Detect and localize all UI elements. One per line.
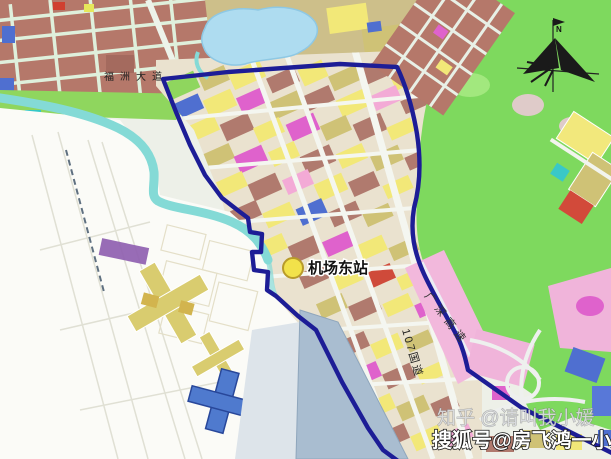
station-label: 机场东站 — [308, 259, 368, 277]
compass-n-label: N — [556, 25, 562, 34]
watermark-zhihu: 知乎 @请叫我小媛 — [437, 407, 595, 429]
station-marker-icon — [283, 258, 303, 278]
planning-map: N 福洲大道 广深高速 107国道 机场东站 知乎 @请叫我小媛 搜狐号@房飞鸿… — [0, 0, 611, 459]
watermark-souhu: 搜狐号@房飞鸿一小媛 — [432, 428, 611, 452]
hill-parcel — [512, 94, 544, 116]
road-label-fuzhou-avenue: 福洲大道 — [104, 70, 168, 83]
